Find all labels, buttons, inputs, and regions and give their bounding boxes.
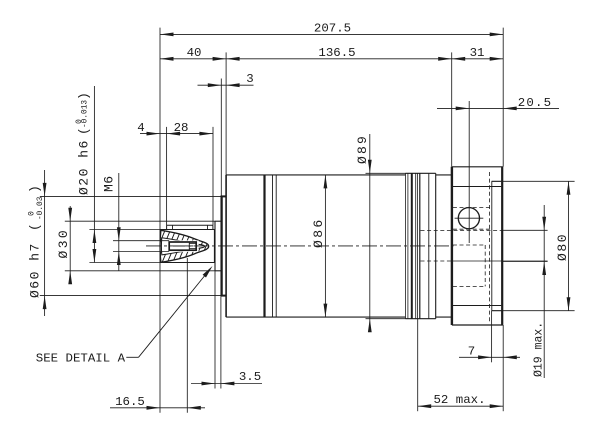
svg-text:7: 7 (468, 344, 475, 358)
svg-text:Ø30: Ø30 (56, 228, 71, 259)
svg-text:Ø86: Ø86 (311, 217, 326, 248)
svg-text:20.5: 20.5 (518, 96, 553, 110)
svg-text:): ) (28, 185, 43, 193)
svg-text:-0.03: -0.03 (37, 196, 45, 220)
svg-text:3.5: 3.5 (239, 370, 261, 384)
svg-text:(: ( (28, 223, 43, 231)
svg-text:Ø20 h6: Ø20 h6 (77, 139, 92, 195)
svg-text:Ø80: Ø80 (555, 233, 570, 261)
svg-text:16.5: 16.5 (115, 395, 145, 409)
svg-text:Ø19 max.: Ø19 max. (533, 322, 546, 377)
svg-text:0: 0 (29, 211, 37, 216)
svg-text:52 max.: 52 max. (433, 393, 485, 407)
svg-text:207.5: 207.5 (314, 22, 351, 36)
svg-text:4: 4 (137, 121, 144, 135)
svg-text:Ø89: Ø89 (355, 134, 370, 164)
svg-text:SEE DETAIL A: SEE DETAIL A (36, 352, 126, 366)
svg-text:3: 3 (246, 72, 253, 86)
svg-text:M6: M6 (102, 175, 117, 192)
svg-text:40: 40 (187, 46, 202, 60)
svg-text:-0.013: -0.013 (82, 100, 90, 128)
svg-text:136.5: 136.5 (318, 46, 355, 60)
svg-text:Ø60 h7: Ø60 h7 (28, 242, 43, 298)
svg-text:31: 31 (470, 46, 485, 60)
svg-text:): ) (77, 92, 92, 100)
svg-text:28: 28 (174, 121, 189, 135)
